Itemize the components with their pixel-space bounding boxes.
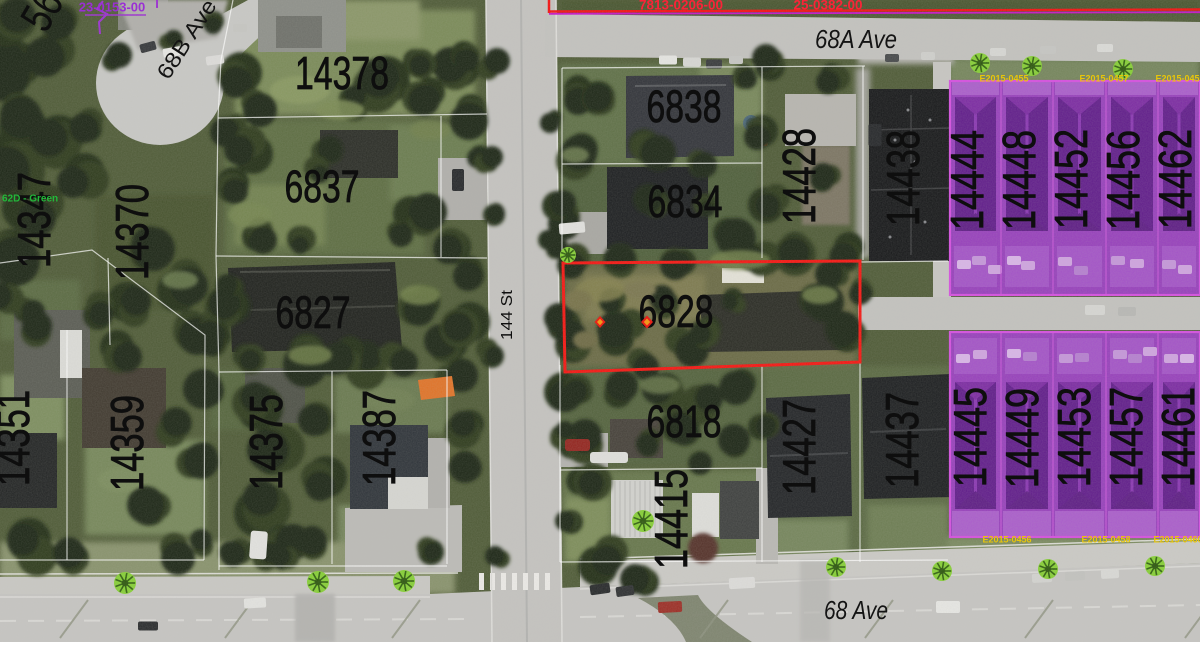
svg-text:E2015-0460: E2015-0460 <box>1153 534 1200 544</box>
svg-text:14452: 14452 <box>1045 129 1097 229</box>
svg-text:25-0382-00: 25-0382-00 <box>793 0 862 13</box>
svg-text:E2015-0457: E2015-0457 <box>1079 73 1128 83</box>
svg-text:6827: 6827 <box>276 287 351 338</box>
svg-text:14445: 14445 <box>944 387 996 487</box>
svg-text:68 Ave: 68 Ave <box>824 595 888 625</box>
svg-text:14444: 14444 <box>941 130 993 230</box>
svg-text:14456: 14456 <box>1097 130 1149 230</box>
svg-text:E2015-0459: E2015-0459 <box>1155 73 1200 83</box>
svg-text:6818: 6818 <box>647 396 722 447</box>
svg-text:62D - Green: 62D - Green <box>2 194 58 205</box>
svg-text:14387: 14387 <box>353 390 405 486</box>
svg-text:14449: 14449 <box>996 388 1048 488</box>
svg-text:6838: 6838 <box>647 81 722 132</box>
svg-text:14462: 14462 <box>1149 129 1200 229</box>
svg-text:14370: 14370 <box>106 184 158 280</box>
svg-text:E2015-0456: E2015-0456 <box>982 534 1031 544</box>
svg-text:14415: 14415 <box>645 469 697 569</box>
svg-text:14453: 14453 <box>1048 387 1100 487</box>
svg-text:14427: 14427 <box>773 399 825 495</box>
svg-text:14448: 14448 <box>993 130 1045 230</box>
svg-text:14437: 14437 <box>876 392 928 488</box>
svg-text:14428: 14428 <box>773 128 825 224</box>
svg-text:68A Ave: 68A Ave <box>815 24 897 54</box>
svg-text:7813-0206-00: 7813-0206-00 <box>639 0 723 13</box>
svg-text:E2015-0455: E2015-0455 <box>979 73 1028 83</box>
svg-text:14359: 14359 <box>101 395 153 491</box>
svg-text:6834: 6834 <box>648 176 723 227</box>
svg-text:14378: 14378 <box>295 47 389 99</box>
svg-text:14438: 14438 <box>877 130 929 226</box>
svg-text:6828: 6828 <box>639 286 714 337</box>
svg-text:14347: 14347 <box>8 172 60 268</box>
svg-text:14351: 14351 <box>0 390 39 486</box>
svg-text:144 St: 144 St <box>499 289 516 340</box>
svg-text:6837: 6837 <box>285 161 360 212</box>
svg-text:14375: 14375 <box>240 394 292 490</box>
svg-text:E2015-0458: E2015-0458 <box>1081 534 1130 544</box>
svg-text:14461: 14461 <box>1152 387 1200 487</box>
svg-text:14457: 14457 <box>1100 387 1152 487</box>
svg-text:23-0153-00: 23-0153-00 <box>79 0 146 14</box>
